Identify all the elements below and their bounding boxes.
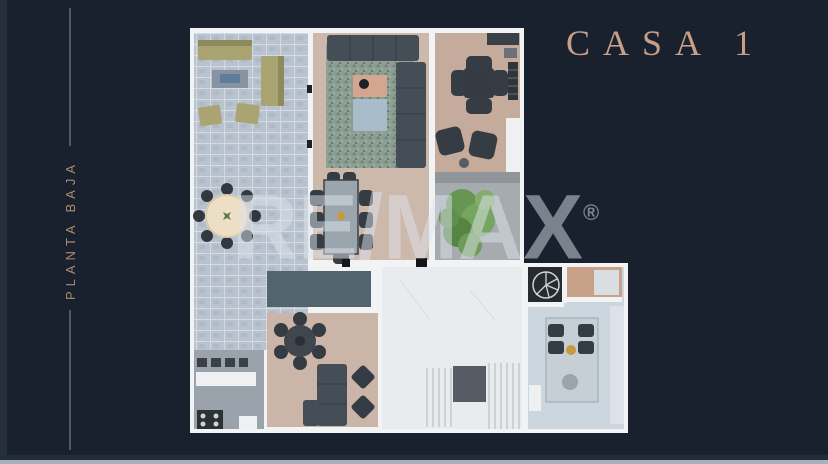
presentation-page: PLANTA BAJA CASA 1	[0, 0, 828, 464]
armchair-right	[468, 130, 499, 161]
floorplan-render	[0, 0, 828, 464]
living-sofa-right	[396, 62, 426, 168]
door-marker	[307, 85, 312, 93]
courtyard-low-wall	[435, 172, 520, 183]
island-sink	[562, 374, 578, 390]
family-l-sofa	[317, 364, 347, 426]
stair-void	[453, 366, 486, 402]
kitchen-counter-right	[610, 306, 624, 424]
console-table	[487, 33, 519, 45]
wall-column	[342, 259, 350, 267]
pool-slab	[267, 271, 371, 307]
living-ottoman	[353, 99, 387, 131]
closet-block	[506, 118, 522, 172]
living-room-furniture	[326, 35, 426, 168]
door-marker	[307, 140, 312, 148]
door-marker	[416, 258, 427, 267]
kitchen-sink-cabinet	[529, 385, 541, 411]
bottom-strip	[0, 455, 828, 464]
gold-pendant-light	[566, 345, 576, 355]
bottom-strip-highlight	[0, 460, 828, 464]
outdoor-sink	[239, 416, 257, 429]
terrace-round-dining-table	[193, 183, 261, 249]
living-coffee-table	[353, 75, 387, 97]
gold-pendant-light	[337, 212, 345, 220]
grill-stove	[197, 410, 223, 429]
side-table	[459, 158, 469, 168]
